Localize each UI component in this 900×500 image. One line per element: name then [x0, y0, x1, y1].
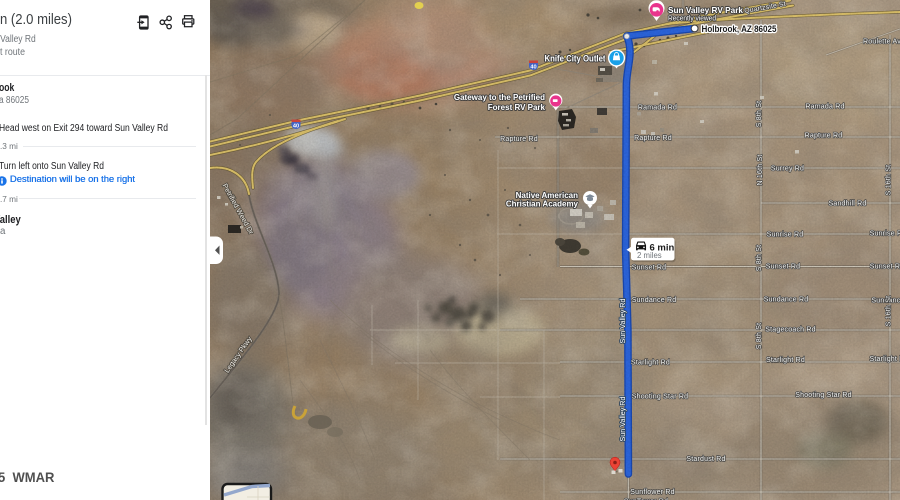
- svg-text:Forest RV Park: Forest RV Park: [488, 103, 546, 112]
- svg-text:Sunrise Rd: Sunrise Rd: [870, 231, 900, 238]
- svg-text:Shooting Star Rd: Shooting Star Rd: [795, 392, 852, 399]
- svg-text:Sunset Rd: Sunset Rd: [870, 264, 900, 271]
- svg-text:Surrey Rd: Surrey Rd: [771, 166, 804, 173]
- svg-text:Starlight Rd: Starlight Rd: [631, 360, 670, 367]
- svg-text:Sunset Rd: Sunset Rd: [766, 264, 801, 271]
- svg-text:Gateway to the Petrified: Gateway to the Petrified: [454, 93, 545, 102]
- svg-text:Sunrise Rd: Sunrise Rd: [767, 232, 804, 239]
- svg-text:Sun Valley Rd: Sun Valley Rd: [618, 298, 627, 343]
- svg-text:Starlight R: Starlight R: [870, 356, 900, 363]
- svg-text:S 8th St: S 8th St: [756, 323, 763, 350]
- svg-text:40: 40: [293, 124, 299, 130]
- svg-text:Sandhill Rd: Sandhill Rd: [829, 201, 867, 208]
- svg-text:S 16th St: S 16th St: [886, 165, 893, 196]
- svg-text:2 miles: 2 miles: [637, 251, 662, 260]
- svg-text:Starlight Rd: Starlight Rd: [766, 357, 805, 364]
- svg-text:Sundance Rd: Sundance Rd: [632, 297, 677, 304]
- svg-text:Knife City Outlet: Knife City Outlet: [545, 54, 607, 65]
- svg-text:Rapture Rd: Rapture Rd: [500, 136, 538, 143]
- svg-text:Rapture Rd: Rapture Rd: [634, 135, 672, 142]
- svg-text:Roulette Ave: Roulette Ave: [863, 39, 900, 46]
- svg-text:Sun Valley Rd: Sun Valley Rd: [618, 396, 627, 441]
- svg-text:Recently viewed: Recently viewed: [668, 14, 716, 23]
- svg-text:S 8th St: S 8th St: [756, 245, 763, 272]
- svg-text:Rapture Rd: Rapture Rd: [805, 133, 843, 140]
- svg-text:Shooting Star Rd: Shooting Star Rd: [632, 394, 689, 401]
- svg-text:Holbrook, AZ 86025: Holbrook, AZ 86025: [702, 24, 777, 34]
- svg-text:Sunset Rd: Sunset Rd: [632, 265, 667, 272]
- svg-text:S 16th St: S 16th St: [886, 296, 893, 327]
- svg-text:Ramada Rd: Ramada Rd: [638, 105, 677, 112]
- svg-text:Sunflower Rd: Sunflower Rd: [630, 489, 674, 496]
- svg-text:Ramada Rd: Ramada Rd: [805, 104, 844, 111]
- svg-text:N 16th St: N 16th St: [757, 155, 764, 186]
- svg-text:Stagecoach Rd: Stagecoach Rd: [765, 327, 815, 334]
- svg-text:Sundance Rd: Sundance Rd: [764, 297, 809, 304]
- svg-text:S 8th St: S 8th St: [756, 101, 763, 128]
- svg-text:Stardust Rd: Stardust Rd: [686, 456, 725, 463]
- svg-text:Christian Academy: Christian Academy: [506, 200, 579, 209]
- svg-text:40: 40: [530, 65, 536, 71]
